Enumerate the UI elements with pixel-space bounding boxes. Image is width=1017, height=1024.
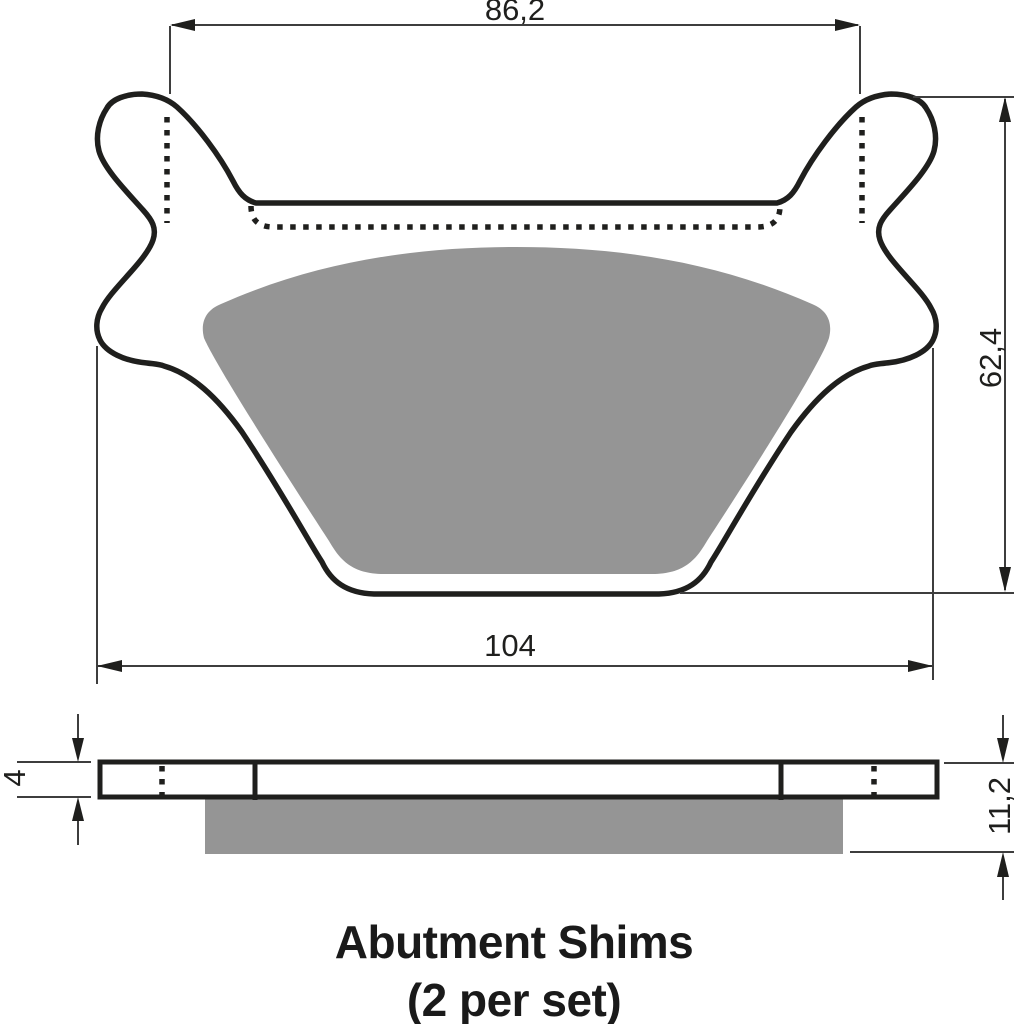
arrowhead-right bbox=[908, 660, 933, 672]
arrowhead-right bbox=[835, 19, 860, 31]
dimension-value-shim-thickness: 4 bbox=[0, 769, 32, 786]
arrowhead-down bbox=[72, 738, 84, 762]
technical-drawing-page: 86,2 104 62,4 bbox=[0, 0, 1017, 1024]
brake-pad-shim-drawing: 86,2 104 62,4 bbox=[0, 0, 1017, 1024]
arrowhead-up bbox=[72, 797, 84, 821]
dimension-value-total-thickness: 11,2 bbox=[982, 777, 1017, 835]
dimension-top-width: 86,2 bbox=[170, 0, 860, 94]
hidden-shim-edge bbox=[251, 206, 780, 227]
dimension-value-overall-height: 62,4 bbox=[973, 328, 1008, 388]
arrowhead-left bbox=[170, 19, 195, 31]
arrowhead-left bbox=[97, 660, 122, 672]
arrowhead-down bbox=[999, 567, 1011, 592]
top-view bbox=[97, 94, 936, 594]
dimension-value-top-width: 86,2 bbox=[485, 0, 545, 27]
dimension-value-bottom-width: 104 bbox=[484, 628, 536, 663]
arrowhead-up bbox=[999, 97, 1011, 122]
dimension-shim-thickness: 4 bbox=[0, 714, 91, 845]
caption-line-1: Abutment Shims bbox=[335, 916, 693, 968]
dimension-total-thickness: 11,2 bbox=[850, 715, 1017, 900]
caption-line-2: (2 per set) bbox=[407, 974, 621, 1024]
shim-bar bbox=[100, 762, 937, 797]
arrowhead-up bbox=[997, 852, 1009, 877]
friction-pad-side bbox=[205, 798, 843, 854]
side-view bbox=[100, 760, 937, 854]
arrowhead-down bbox=[997, 738, 1009, 763]
